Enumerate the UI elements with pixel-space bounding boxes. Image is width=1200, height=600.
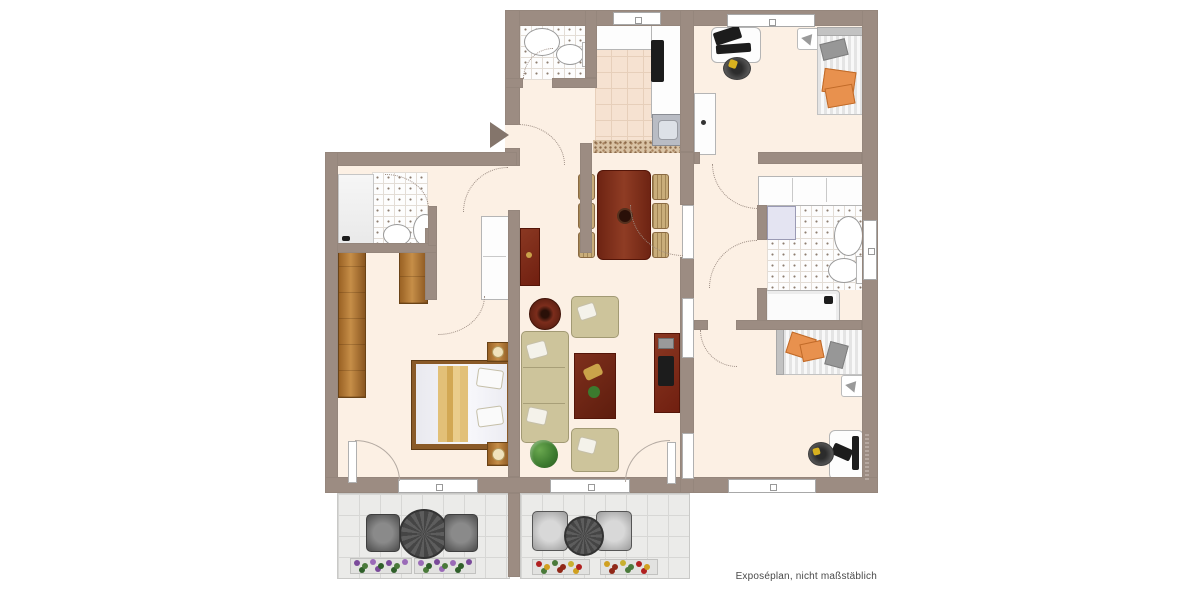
wall-horizontal-left xyxy=(325,152,517,166)
wardrobe-row xyxy=(758,176,864,206)
wall-bathleft-right xyxy=(428,206,437,246)
bedroom-wardrobe-top xyxy=(399,248,428,304)
wall-center-a xyxy=(680,10,694,152)
terrace-right-table xyxy=(564,516,604,556)
wall-topright-room-a xyxy=(694,152,700,164)
living-armchair-top xyxy=(571,296,619,338)
window-living xyxy=(550,479,630,493)
radiator-strip xyxy=(682,433,694,479)
plan-caption: Exposéplan, nicht maßstäblich xyxy=(677,571,877,582)
bedroom-wardrobe-left xyxy=(338,248,366,398)
flowers-red-yellow xyxy=(604,561,610,567)
bed-blanket-yellow xyxy=(438,366,468,442)
kitchen-counter-top xyxy=(595,24,655,50)
wall-wc-bottom-b xyxy=(552,78,597,88)
hall-door-leaf xyxy=(682,205,694,259)
wall-terrace-divider xyxy=(508,493,520,577)
wall-bathright-left-b xyxy=(757,288,767,323)
wall-left-lower xyxy=(325,152,338,493)
wall-bathright-left-a xyxy=(757,205,767,240)
office-chair xyxy=(808,442,834,466)
wall-wc-divider xyxy=(585,10,597,78)
wardrobe-divider xyxy=(792,178,793,202)
window-topright-top xyxy=(727,14,815,27)
wardrobe-divider xyxy=(826,178,827,202)
monitor xyxy=(852,436,859,470)
coffee-table-plant xyxy=(588,386,600,398)
terrace-left-table xyxy=(399,509,449,559)
bed-pillow xyxy=(476,367,504,389)
wall-bathright-bottom-a xyxy=(694,320,708,330)
nook-wardrobe-divider xyxy=(483,256,506,257)
window-kitchen-top xyxy=(613,12,661,25)
floor-plan-page: { "caption": { "text": "Exposéplan, nich… xyxy=(0,0,1200,600)
floor-plan: Exposéplan, nicht maßstäblich xyxy=(0,0,1200,600)
wall-bathright-bottom-b xyxy=(736,320,862,330)
bathroom-right-sink xyxy=(834,216,863,256)
wall-left-upper xyxy=(505,10,520,125)
wall-bathleft-bottom xyxy=(337,243,437,253)
kitchen-sink-basin xyxy=(658,120,678,140)
wall-wc-bottom-a xyxy=(505,78,523,88)
wall-bedroom xyxy=(508,210,520,477)
watermark-text xyxy=(865,432,869,480)
kitchen-cooktop xyxy=(651,40,664,82)
washing-machine xyxy=(767,206,796,240)
nightstand-lamp xyxy=(492,346,504,358)
shower-faucet xyxy=(342,236,350,241)
cabinet-handle xyxy=(701,120,706,125)
wall-dining-divider xyxy=(580,143,592,253)
bed-headboard xyxy=(776,328,784,375)
terrace-left-chair xyxy=(366,514,400,552)
bathtub-faucet xyxy=(824,296,833,304)
terrace-right-chair xyxy=(532,511,568,551)
nightstand-lamp xyxy=(492,448,505,461)
flowers-purple xyxy=(354,560,360,566)
nook-wardrobe xyxy=(481,216,510,300)
wall-topright-room-b xyxy=(758,152,862,164)
bed-pillow xyxy=(476,405,504,427)
living-plant xyxy=(530,440,558,468)
sofa-cushion-line xyxy=(523,367,565,368)
sideboard-items xyxy=(658,338,674,349)
flowers-purple xyxy=(418,560,424,566)
radiator-strip xyxy=(682,298,694,358)
entrance-arrow-icon xyxy=(490,122,509,148)
wall-center-b xyxy=(680,152,694,205)
window-bottomright xyxy=(728,479,816,493)
sofa-cushion-line xyxy=(523,403,565,404)
bed-headboard xyxy=(817,27,864,36)
tv-screen xyxy=(658,356,674,386)
window-bedroom xyxy=(398,479,478,493)
living-side-table xyxy=(529,298,561,330)
guest-wc-toilet xyxy=(556,44,584,65)
flowers-red-yellow xyxy=(536,561,542,567)
window-bathright xyxy=(863,220,877,280)
hall-cabinet-handle xyxy=(526,252,532,258)
dining-chair xyxy=(652,174,669,200)
terrace-left-chair xyxy=(444,514,478,552)
